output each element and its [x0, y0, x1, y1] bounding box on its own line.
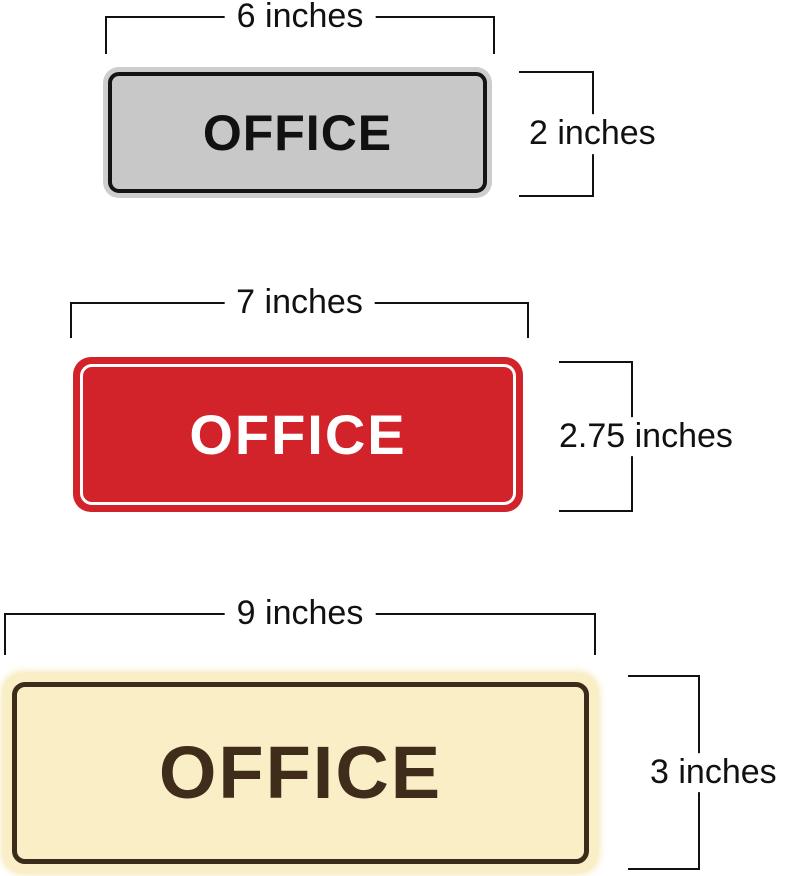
height-dimension-label-red: 2.75 inches [551, 417, 741, 457]
width-dimension-label-cream: 9 inches [225, 596, 376, 632]
width-dimension-bracket-gray: 6 inches [105, 16, 495, 54]
height-dimension-bracket-gray: 2 inches [519, 71, 594, 197]
sign-text-red: OFFICE [189, 407, 406, 463]
product-dimension-diagram: 6 inches OFFICE 2 inches 7 inches OFFICE… [0, 0, 795, 876]
sign-text-cream: OFFICE [159, 736, 442, 810]
height-dimension-bracket-red: 2.75 inches [559, 361, 633, 512]
width-dimension-label-red: 7 inches [224, 285, 375, 321]
sign-text-gray: OFFICE [203, 108, 392, 158]
office-sign-gray: OFFICE [103, 67, 492, 198]
height-dimension-label-gray: 2 inches [521, 114, 664, 154]
width-dimension-bracket-red: 7 inches [70, 302, 529, 338]
height-dimension-label-cream: 3 inches [642, 753, 785, 793]
sign-face-cream: OFFICE [12, 682, 589, 864]
width-dimension-bracket-cream: 9 inches [4, 613, 596, 655]
sign-face-gray: OFFICE [108, 72, 487, 193]
height-dimension-bracket-cream: 3 inches [628, 675, 700, 870]
office-sign-red: OFFICE [73, 357, 523, 512]
width-dimension-label-gray: 6 inches [225, 0, 376, 35]
office-sign-cream: OFFICE [3, 673, 598, 873]
